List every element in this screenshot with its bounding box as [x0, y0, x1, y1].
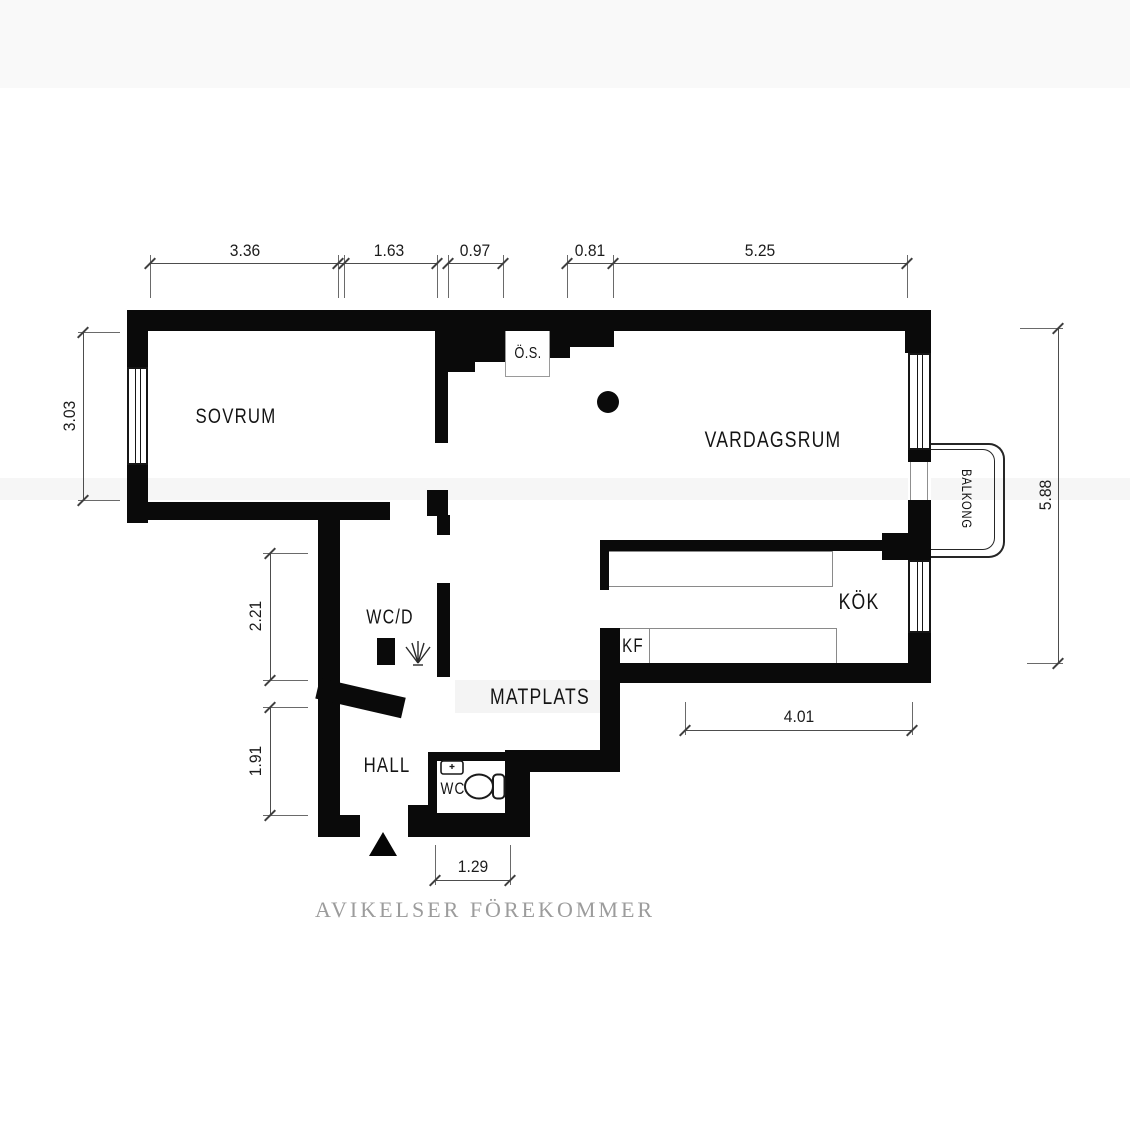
window-pane-line	[917, 562, 918, 631]
window-kitchen-right	[908, 560, 931, 633]
dim-label-081: 0.81	[575, 241, 605, 261]
entrance-arrow-icon	[366, 830, 400, 858]
wall-wcd-right-upper	[437, 515, 450, 535]
dim-line-top	[448, 263, 503, 264]
room-label-vardagsrum: VARDAGSRUM	[705, 427, 842, 453]
dim-label-097: 0.97	[460, 241, 490, 261]
window-pane-line	[922, 562, 923, 631]
room-label-wcd: WC/D	[366, 607, 413, 630]
wall-top-step-c	[550, 331, 570, 358]
wall-right-seg2	[908, 500, 931, 560]
wall-wcd-shower-stub	[377, 638, 395, 665]
room-label-kf: KF	[622, 636, 644, 658]
door-frame-line	[927, 462, 928, 500]
room-label-sovrum: SOVRUM	[196, 405, 277, 429]
wall-top-step-b	[475, 331, 505, 362]
room-label-wc: WC	[440, 779, 465, 799]
window-livingroom-right	[908, 353, 931, 450]
door-frame-line	[910, 462, 911, 500]
wall-left-upper	[127, 310, 148, 368]
wall-sovrum-bottom	[127, 502, 390, 520]
dim-label-588: 5.88	[1036, 480, 1056, 510]
window-pane-line	[922, 355, 923, 448]
dim-line-left-303	[83, 332, 84, 500]
dim-label-336: 3.36	[230, 241, 260, 261]
window-pane-line	[135, 369, 136, 463]
room-label-balkong: BALKONG	[959, 469, 975, 529]
room-label-kok: KÖK	[839, 589, 880, 615]
dim-line-bottom-401	[685, 730, 912, 731]
dim-label-221: 2.21	[246, 601, 266, 631]
dim-label-401: 4.01	[784, 707, 814, 727]
wall-top-step-a	[448, 331, 475, 372]
toilet-icon	[463, 771, 508, 802]
shower-icon	[403, 639, 433, 667]
dim-line-top	[567, 263, 907, 264]
dim-line-left-221	[270, 553, 271, 680]
wall-corridor-left	[318, 502, 340, 837]
wall-top-step-d	[570, 331, 614, 347]
sink-icon	[440, 760, 464, 775]
vent-icon	[597, 391, 619, 413]
wall-wcd-right-lower	[437, 583, 450, 677]
wall-divider-junction	[882, 533, 908, 560]
wall-sovrum-door-stub	[427, 490, 448, 516]
dim-label-163: 1.63	[374, 241, 404, 261]
wall-kitchen-left-drop	[600, 540, 609, 590]
wall-wc-bottom	[408, 813, 530, 837]
wall-wc-left	[428, 752, 437, 813]
window-pane-line	[140, 369, 141, 463]
wall-top	[127, 310, 931, 331]
dim-line-left-191	[270, 707, 271, 815]
wall-corner-top-right	[905, 310, 931, 353]
dim-line-right-588	[1058, 328, 1059, 663]
dim-label-129: 1.29	[458, 857, 488, 877]
disclaimer-text: AVIKELSER FÖREKOMMER	[315, 897, 655, 923]
dim-label-525: 5.25	[745, 241, 775, 261]
dim-line-top	[150, 263, 437, 264]
dim-line-bottom-129	[435, 880, 510, 881]
kf-divider-line	[649, 629, 650, 664]
wall-sovrum-right	[435, 331, 448, 443]
balcony-door-opening	[908, 462, 931, 500]
dim-label-303: 3.03	[60, 401, 80, 431]
kitchen-counter-bottom	[612, 628, 837, 665]
background-band-top	[0, 0, 1130, 88]
room-label-os: Ö.S.	[514, 345, 541, 363]
kitchen-counter-top	[607, 551, 833, 587]
window-sovrum	[127, 367, 148, 465]
floor-plan: SOVRUM VARDAGSRUM KÖK Ö.S. WC/D MATPLATS…	[0, 0, 1130, 1130]
wall-right-seg1	[908, 450, 931, 462]
room-label-matplats: MATPLATS	[490, 684, 590, 710]
dim-label-191: 1.91	[246, 746, 266, 776]
window-pane-line	[917, 355, 918, 448]
room-label-hall: HALL	[364, 754, 411, 778]
wall-kitchen-bottom	[600, 663, 931, 683]
